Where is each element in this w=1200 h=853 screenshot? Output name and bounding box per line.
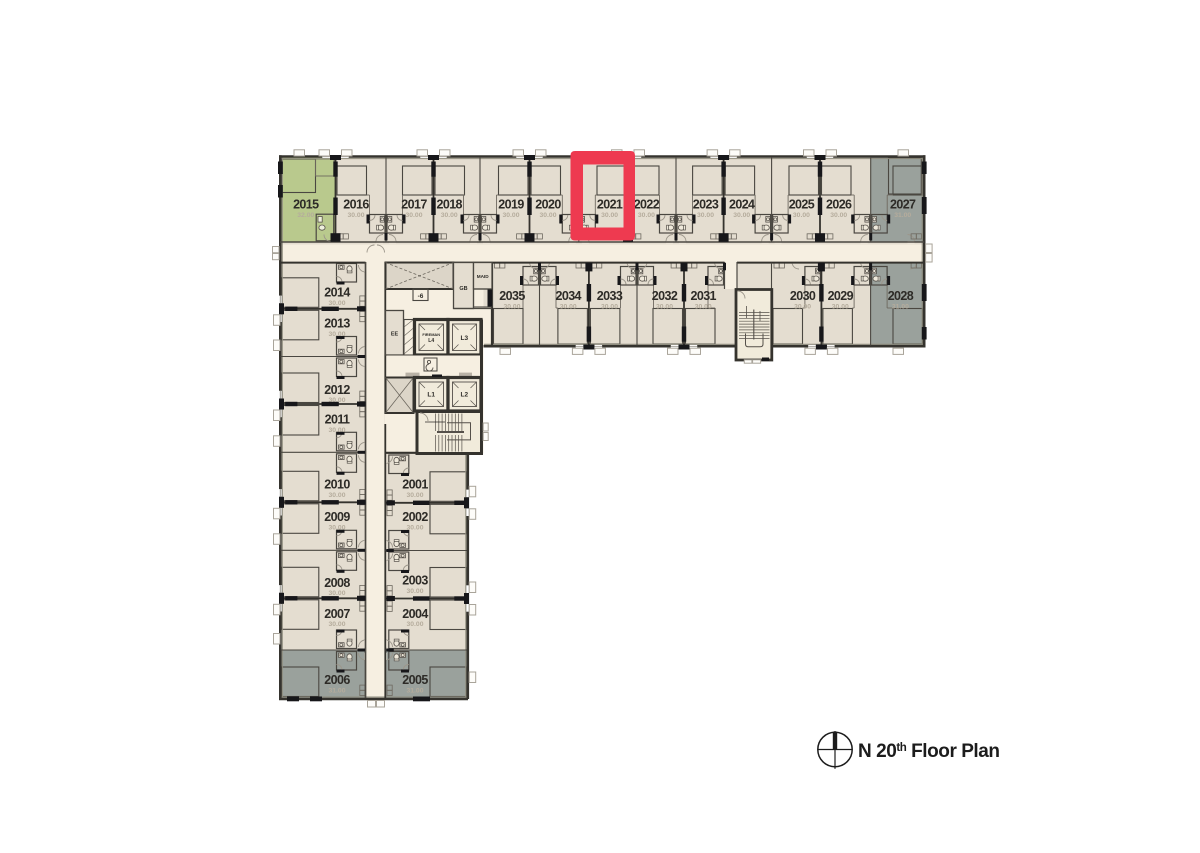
svg-text:2020: 2020: [535, 198, 561, 212]
svg-text:2027: 2027: [890, 198, 916, 212]
svg-text:30.00: 30.00: [406, 524, 423, 531]
svg-text:30.00: 30.00: [601, 303, 618, 310]
svg-text:30.00: 30.00: [560, 303, 577, 310]
svg-text:2005: 2005: [402, 673, 428, 687]
svg-text:2009: 2009: [324, 510, 350, 524]
svg-text:L1: L1: [427, 392, 435, 399]
svg-text:31.00: 31.00: [892, 303, 909, 310]
svg-text:30.00: 30.00: [328, 300, 345, 307]
svg-text:2010: 2010: [324, 478, 350, 492]
svg-text:2004: 2004: [402, 607, 428, 621]
svg-text:L2: L2: [461, 392, 469, 399]
svg-text:30.00: 30.00: [441, 212, 458, 219]
svg-text:2019: 2019: [498, 198, 524, 212]
svg-text:30.00: 30.00: [697, 212, 714, 219]
svg-text:FIREMAN: FIREMAN: [422, 332, 440, 337]
svg-text:30.00: 30.00: [328, 621, 345, 628]
svg-text:2001: 2001: [402, 478, 428, 492]
svg-text:2028: 2028: [888, 289, 914, 303]
svg-text:31.00: 31.00: [894, 212, 911, 219]
svg-text:-6: -6: [418, 293, 424, 300]
svg-text:2033: 2033: [597, 289, 623, 303]
svg-text:30.00: 30.00: [539, 212, 556, 219]
svg-text:L3: L3: [461, 335, 469, 342]
svg-text:30.00: 30.00: [406, 588, 423, 595]
svg-text:2022: 2022: [634, 198, 660, 212]
svg-text:2007: 2007: [324, 607, 350, 621]
svg-text:2012: 2012: [324, 383, 350, 397]
svg-text:2013: 2013: [324, 317, 350, 331]
svg-text:30.00: 30.00: [347, 212, 364, 219]
svg-text:2035: 2035: [499, 289, 525, 303]
svg-text:N 20th Floor Plan: N 20th Floor Plan: [858, 741, 1000, 762]
svg-text:30.00: 30.00: [406, 621, 423, 628]
svg-text:31.00: 31.00: [328, 687, 345, 694]
svg-text:32.00: 32.00: [297, 212, 314, 219]
svg-text:GB: GB: [459, 286, 467, 292]
svg-text:2031: 2031: [690, 289, 716, 303]
svg-text:30.00: 30.00: [328, 590, 345, 597]
svg-text:2030: 2030: [790, 289, 816, 303]
svg-text:30.00: 30.00: [832, 303, 849, 310]
svg-text:2025: 2025: [789, 198, 815, 212]
svg-text:2016: 2016: [343, 198, 369, 212]
svg-text:2015: 2015: [293, 198, 319, 212]
svg-text:30.00: 30.00: [328, 331, 345, 338]
svg-text:2023: 2023: [693, 198, 719, 212]
svg-text:2018: 2018: [436, 198, 462, 212]
svg-text:30.00: 30.00: [502, 212, 519, 219]
svg-text:31.00: 31.00: [406, 687, 423, 694]
svg-text:2034: 2034: [555, 289, 581, 303]
svg-text:2024: 2024: [729, 198, 755, 212]
svg-text:2032: 2032: [652, 289, 678, 303]
svg-text:30.00: 30.00: [328, 524, 345, 531]
svg-text:30.00: 30.00: [830, 212, 847, 219]
svg-text:2006: 2006: [324, 673, 350, 687]
svg-text:L4: L4: [428, 338, 434, 344]
svg-text:EE: EE: [391, 332, 399, 338]
svg-text:2002: 2002: [402, 510, 428, 524]
svg-text:30.00: 30.00: [733, 212, 750, 219]
svg-text:2029: 2029: [828, 289, 854, 303]
svg-text:2011: 2011: [325, 413, 350, 427]
svg-text:2021: 2021: [597, 198, 623, 212]
svg-text:MAID: MAID: [477, 274, 490, 279]
svg-text:2026: 2026: [826, 198, 852, 212]
svg-text:30.00: 30.00: [794, 303, 811, 310]
svg-text:30.00: 30.00: [695, 303, 712, 310]
svg-text:30.00: 30.00: [793, 212, 810, 219]
svg-text:2017: 2017: [401, 198, 427, 212]
svg-text:2008: 2008: [324, 576, 350, 590]
svg-text:30.00: 30.00: [503, 303, 520, 310]
svg-text:2014: 2014: [324, 286, 350, 300]
svg-text:30.00: 30.00: [638, 212, 655, 219]
svg-text:2003: 2003: [402, 574, 428, 588]
svg-text:30.00: 30.00: [328, 427, 345, 434]
svg-text:30.00: 30.00: [656, 303, 673, 310]
svg-text:30.00: 30.00: [601, 212, 618, 219]
svg-text:30.00: 30.00: [328, 492, 345, 499]
svg-text:30.00: 30.00: [405, 212, 422, 219]
svg-text:30.00: 30.00: [406, 492, 423, 499]
